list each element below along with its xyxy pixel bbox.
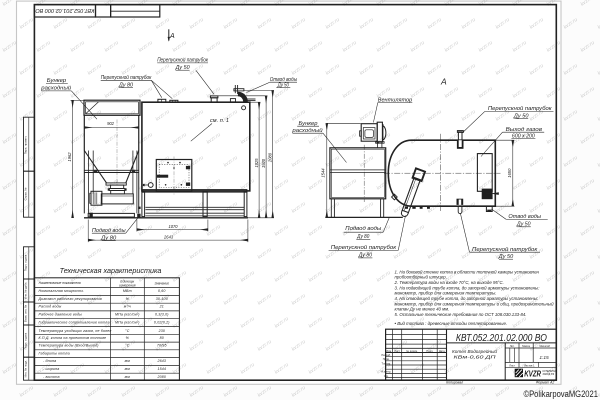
svg-text:Изм.: Изм. [386,349,392,353]
svg-text:- высота: - высота [43,375,60,379]
svg-text:Разраб.: Разраб. [382,353,392,357]
svg-text:230: 230 [158,329,165,333]
svg-text:Взам. инв. №: Взам. инв. № [23,305,27,322]
svg-text:°С: °С [125,329,130,333]
svg-text:Дата: Дата [439,349,445,353]
svg-text:902: 902 [107,121,115,126]
svg-text:KVZR: KVZR [524,369,541,379]
svg-text:Перв. примен.: Перв. примен. [23,135,27,154]
svg-text:К.П.Д. котла на проектном топл: К.П.Д. котла на проектном топливе [39,336,107,340]
svg-text:Значение: Значение [155,282,170,286]
svg-text:- длина: - длина [43,359,56,363]
svg-text:0,60: 0,60 [158,289,166,293]
svg-text:0,02(0,2): 0,02(0,2) [154,320,170,324]
svg-text:Номинальная мощность: Номинальная мощность [39,289,84,293]
svg-text:2080: 2080 [156,375,166,379]
svg-text:Инв. № подл.: Инв. № подл. [23,360,27,378]
svg-text:Формат А2: Формат А2 [536,381,555,385]
svg-text:МВт: МВт [123,289,132,293]
svg-text:©PolikarpovaMG2021: ©PolikarpovaMG2021 [524,389,599,400]
svg-text:измерения: измерения [119,283,136,287]
svg-text:манометр, прибор для измерения: манометр, прибор для измерения температу… [395,291,497,296]
svg-text:Котел Водогрейный: Котел Водогрейный [452,348,497,354]
svg-text:Пров.: Пров. [383,357,390,361]
svg-text:мм: мм [125,367,131,371]
svg-text:0,3(3,0): 0,3(3,0) [155,313,169,317]
svg-text:Рабочее давление воды: Рабочее давление воды [39,313,83,317]
svg-text:5. Остальные технические треб: 5. Остальные технические требования по О… [395,312,527,317]
svg-text:А: А [169,33,175,40]
svg-text:КВм-0,60 ДП: КВм-0,60 ДП [454,355,497,360]
svg-text:1:15: 1:15 [539,355,549,361]
svg-text:2643: 2643 [163,235,174,240]
svg-text:МПа (кгс/см²): МПа (кгс/см²) [115,313,140,317]
svg-text:80: 80 [160,336,164,340]
svg-text:1650: 1650 [507,168,512,178]
svg-text:1544: 1544 [320,168,325,178]
svg-text:Копировал: Копировал [446,381,463,385]
svg-text:2643: 2643 [156,359,166,363]
svg-text:3. На подводящей трубе котла,: 3. На подводящей трубе котла, до запорно… [395,285,541,290]
svg-text:№ докум.: № докум. [406,350,418,353]
svg-text:Габариты котла: Габариты котла [39,351,70,355]
svg-text:КВТ.052.201.02.000 ВО: КВТ.052.201.02.000 ВО [35,7,95,13]
svg-text:Перепускной патрубок: Перепускной патрубок [331,244,397,251]
svg-text:Температура уходящих газов, не: Температура уходящих газов, не более [39,329,112,333]
svg-text:Ду 80: Ду 80 [356,234,369,240]
svg-text:Утв.: Утв. [384,374,389,378]
svg-text:клапан Ду не менее 40 мм.: клапан Ду не менее 40 мм. [395,307,450,312]
svg-text:Справ. №: Справ. № [23,188,27,201]
svg-text:Лист: Лист [509,363,515,367]
svg-text:мм: мм [125,359,131,363]
svg-text:1544: 1544 [157,367,166,371]
svg-text:мм: мм [125,375,131,379]
svg-text:Расход воды: Расход воды [39,305,62,309]
svg-text:Лит.: Лит. [510,344,515,348]
svg-text:А: А [440,76,447,86]
